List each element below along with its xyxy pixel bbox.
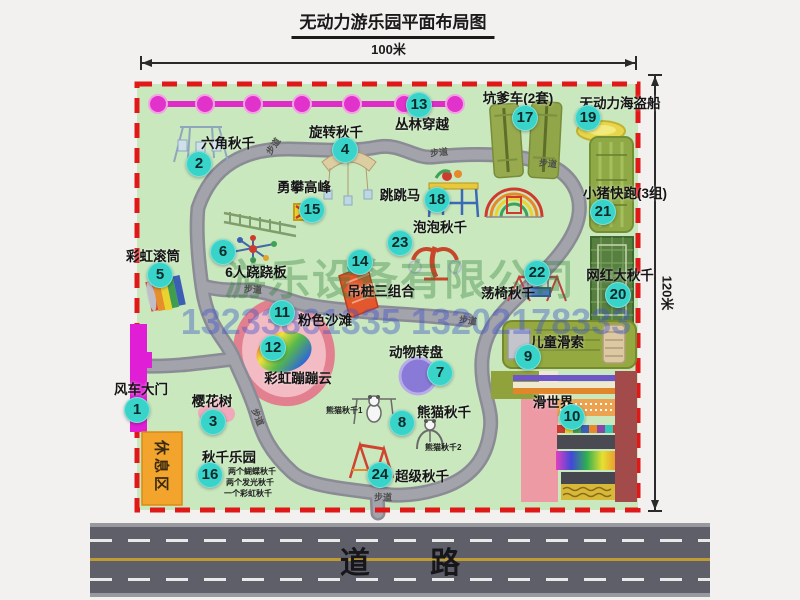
road-label: 道 路 [314,538,486,582]
badge-18: 18 [424,187,450,213]
badge-9: 9 [515,344,541,370]
label-seesaw: 6人跷跷板 [225,261,287,281]
label-cherry-tree: 樱花树 [192,390,233,410]
label-panda-swing: 熊猫秋千 [417,401,471,421]
badge-17: 17 [512,105,538,131]
badge-21: 21 [590,199,616,225]
panda-note-1: 熊猫秋千1 [326,405,362,416]
walkway-label-3: 步道 [538,156,557,171]
width-dimension: 100米 [140,56,637,70]
label-rainbow-cloud: 彩虹蹦蹦云 [264,367,332,387]
height-dimension-label: 120米 [659,276,678,311]
badge-6: 6 [210,239,236,265]
badge-20: 20 [605,282,631,308]
badge-3: 3 [200,409,226,435]
badge-2: 2 [186,151,212,177]
width-dimension-label: 100米 [371,39,406,58]
label-rotating-swing: 旋转秋千 [309,121,363,141]
walkway-label-6: 步道 [458,312,478,327]
label-kengdie-car: 坑爹车(2套) [483,87,554,107]
badge-7: 7 [427,360,453,386]
label-super-swing: 超级秋千 [395,465,449,485]
panda-note-2: 熊猫秋千2 [425,442,461,453]
rest-area-label: 休息区 [152,440,173,494]
swing-park-note-2: 两个发光秋千 [226,477,274,488]
walkway-label-2: 步道 [429,145,448,160]
label-bubble-swing: 泡泡秋千 [413,216,467,236]
label-animal-turntable: 动物转盘 [389,341,443,361]
badge-4: 4 [332,137,358,163]
label-piggy-run: 小猪快跑(3组) [583,182,667,202]
label-peak-climbing: 勇攀高峰 [277,176,331,196]
badge-19: 19 [575,105,601,131]
label-pink-beach: 粉色沙滩 [298,309,352,329]
label-windmill-gate: 风车大门 [114,378,168,398]
badge-1: 1 [124,397,150,423]
badge-8: 8 [389,410,415,436]
road: 道 路 [90,523,710,597]
label-net-swing: 网红大秋千 [586,264,654,284]
badge-10: 10 [559,404,585,430]
badge-16: 16 [197,462,223,488]
walkway-label-4: 步道 [244,282,263,296]
badge-24: 24 [367,462,393,488]
label-jumping-horse: 跳跳马 [380,184,421,204]
badge-22: 22 [524,260,550,286]
badge-12: 12 [260,335,286,361]
label-hex-swing: 六角秋千 [201,132,255,152]
badge-23: 23 [387,230,413,256]
playground-plan: 游乐设备有限公司 13233861335 13202178333 无动力游乐园平… [0,0,800,600]
label-rainbow-roller: 彩虹滚筒 [126,245,180,265]
label-hanging-pile: 吊桩三组合 [347,280,415,300]
height-dimension: 120米 [648,74,662,512]
walkway-label-7: 步道 [374,491,392,504]
badge-15: 15 [299,197,325,223]
badge-13: 13 [406,92,432,118]
badge-14: 14 [347,249,373,275]
plan-title: 无动力游乐园平面布局图 [292,8,495,39]
badge-5: 5 [147,262,173,288]
swing-park-note-3: 一个彩虹秋千 [224,488,272,499]
swing-park-note-1: 两个蝴蝶秋千 [228,466,276,477]
badge-11: 11 [269,300,295,326]
label-chair-swing: 荡椅秋千 [481,282,535,302]
